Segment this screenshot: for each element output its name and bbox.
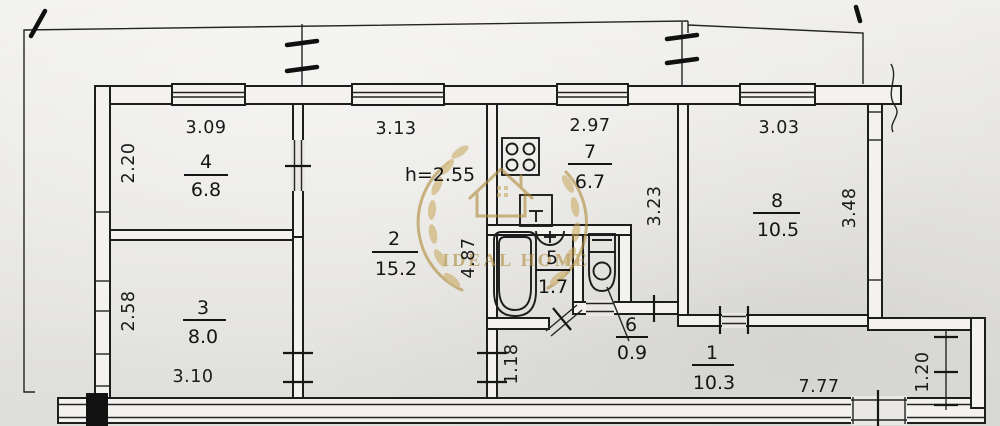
watermark-house-icon	[470, 169, 532, 216]
room-number: 3	[197, 297, 209, 319]
room-number: 1	[706, 342, 718, 364]
room-number: 8	[771, 190, 783, 212]
stove-icon	[502, 138, 539, 175]
dim-room8-width: 3.03	[759, 118, 800, 138]
bathtub-icon	[494, 232, 536, 316]
window-room2	[352, 84, 444, 105]
dim-room4-width: 3.09	[186, 118, 227, 138]
door-entrance	[851, 390, 907, 426]
left-wall	[95, 86, 110, 416]
wall-room8-left	[678, 104, 688, 318]
door-wc	[586, 300, 614, 316]
toilet-icon	[589, 234, 615, 291]
dimension-tick	[31, 11, 45, 36]
wall-room4-room3	[110, 230, 293, 240]
door-room8	[720, 306, 748, 334]
dim-room7-width: 2.97	[570, 116, 611, 136]
room-label-7: 7 6.7	[568, 141, 612, 193]
floor-plan-drawing: IDEAL HOME 3.09 2.20 3.13 4.87 2.97 3.23…	[0, 0, 1000, 426]
right-wall	[868, 104, 882, 330]
window-kitchen	[557, 84, 628, 105]
room-area: 6.7	[575, 171, 605, 193]
room-label-4: 4 6.8	[184, 151, 228, 201]
room-number: 7	[584, 141, 596, 163]
room-label-1: 1 10.3	[692, 342, 735, 394]
room-area: 10.3	[693, 372, 735, 394]
balcony-outline	[24, 7, 863, 392]
dim-vestibule-depth: 1.20	[913, 352, 933, 393]
room-area: 15.2	[375, 258, 417, 280]
room-area: 0.9	[617, 342, 647, 364]
floor-plan-photo: IDEAL HOME 3.09 2.20 3.13 4.87 2.97 3.23…	[0, 0, 1000, 426]
door-room4	[285, 140, 311, 191]
dim-room3-depth: 2.58	[119, 291, 139, 332]
room-area: 1.7	[538, 276, 568, 298]
dim-room3-width: 3.10	[173, 367, 214, 387]
ceiling-height-label: h=2.55	[405, 164, 475, 186]
window-room8	[740, 84, 815, 105]
vestibule-top-wall	[868, 318, 985, 330]
room-number: 2	[388, 228, 400, 250]
room-area: 10.5	[757, 219, 799, 241]
vestibule-right-wall	[971, 318, 985, 408]
wall-room8-hall	[678, 315, 868, 326]
wall-bath-hall	[487, 318, 549, 329]
dim-room2-width: 3.13	[376, 119, 417, 139]
room-label-8: 8 10.5	[753, 190, 800, 241]
dim-room4-depth: 2.20	[119, 143, 139, 184]
wall-room3-room2	[293, 237, 303, 398]
wall-stub-filled	[86, 393, 108, 426]
window-room4	[172, 84, 245, 105]
dim-room8-depth: 3.48	[840, 188, 860, 229]
room-number: 6	[625, 314, 637, 336]
dim-hall-height: 1.18	[502, 344, 522, 385]
room-area: 6.8	[191, 179, 221, 201]
room-area: 8.0	[188, 326, 218, 348]
room-label-2: 2 15.2	[372, 228, 418, 280]
room-number: 4	[200, 151, 212, 173]
bottom-wall	[58, 398, 985, 423]
wall-wc-niche	[619, 235, 631, 305]
room-label-3: 3 8.0	[183, 297, 226, 348]
dim-room7-depth: 3.23	[645, 186, 665, 227]
dim-room2-depth: 4.87	[459, 238, 479, 279]
dim-hall-length: 7.77	[799, 377, 840, 397]
room-number: 5	[546, 247, 558, 269]
